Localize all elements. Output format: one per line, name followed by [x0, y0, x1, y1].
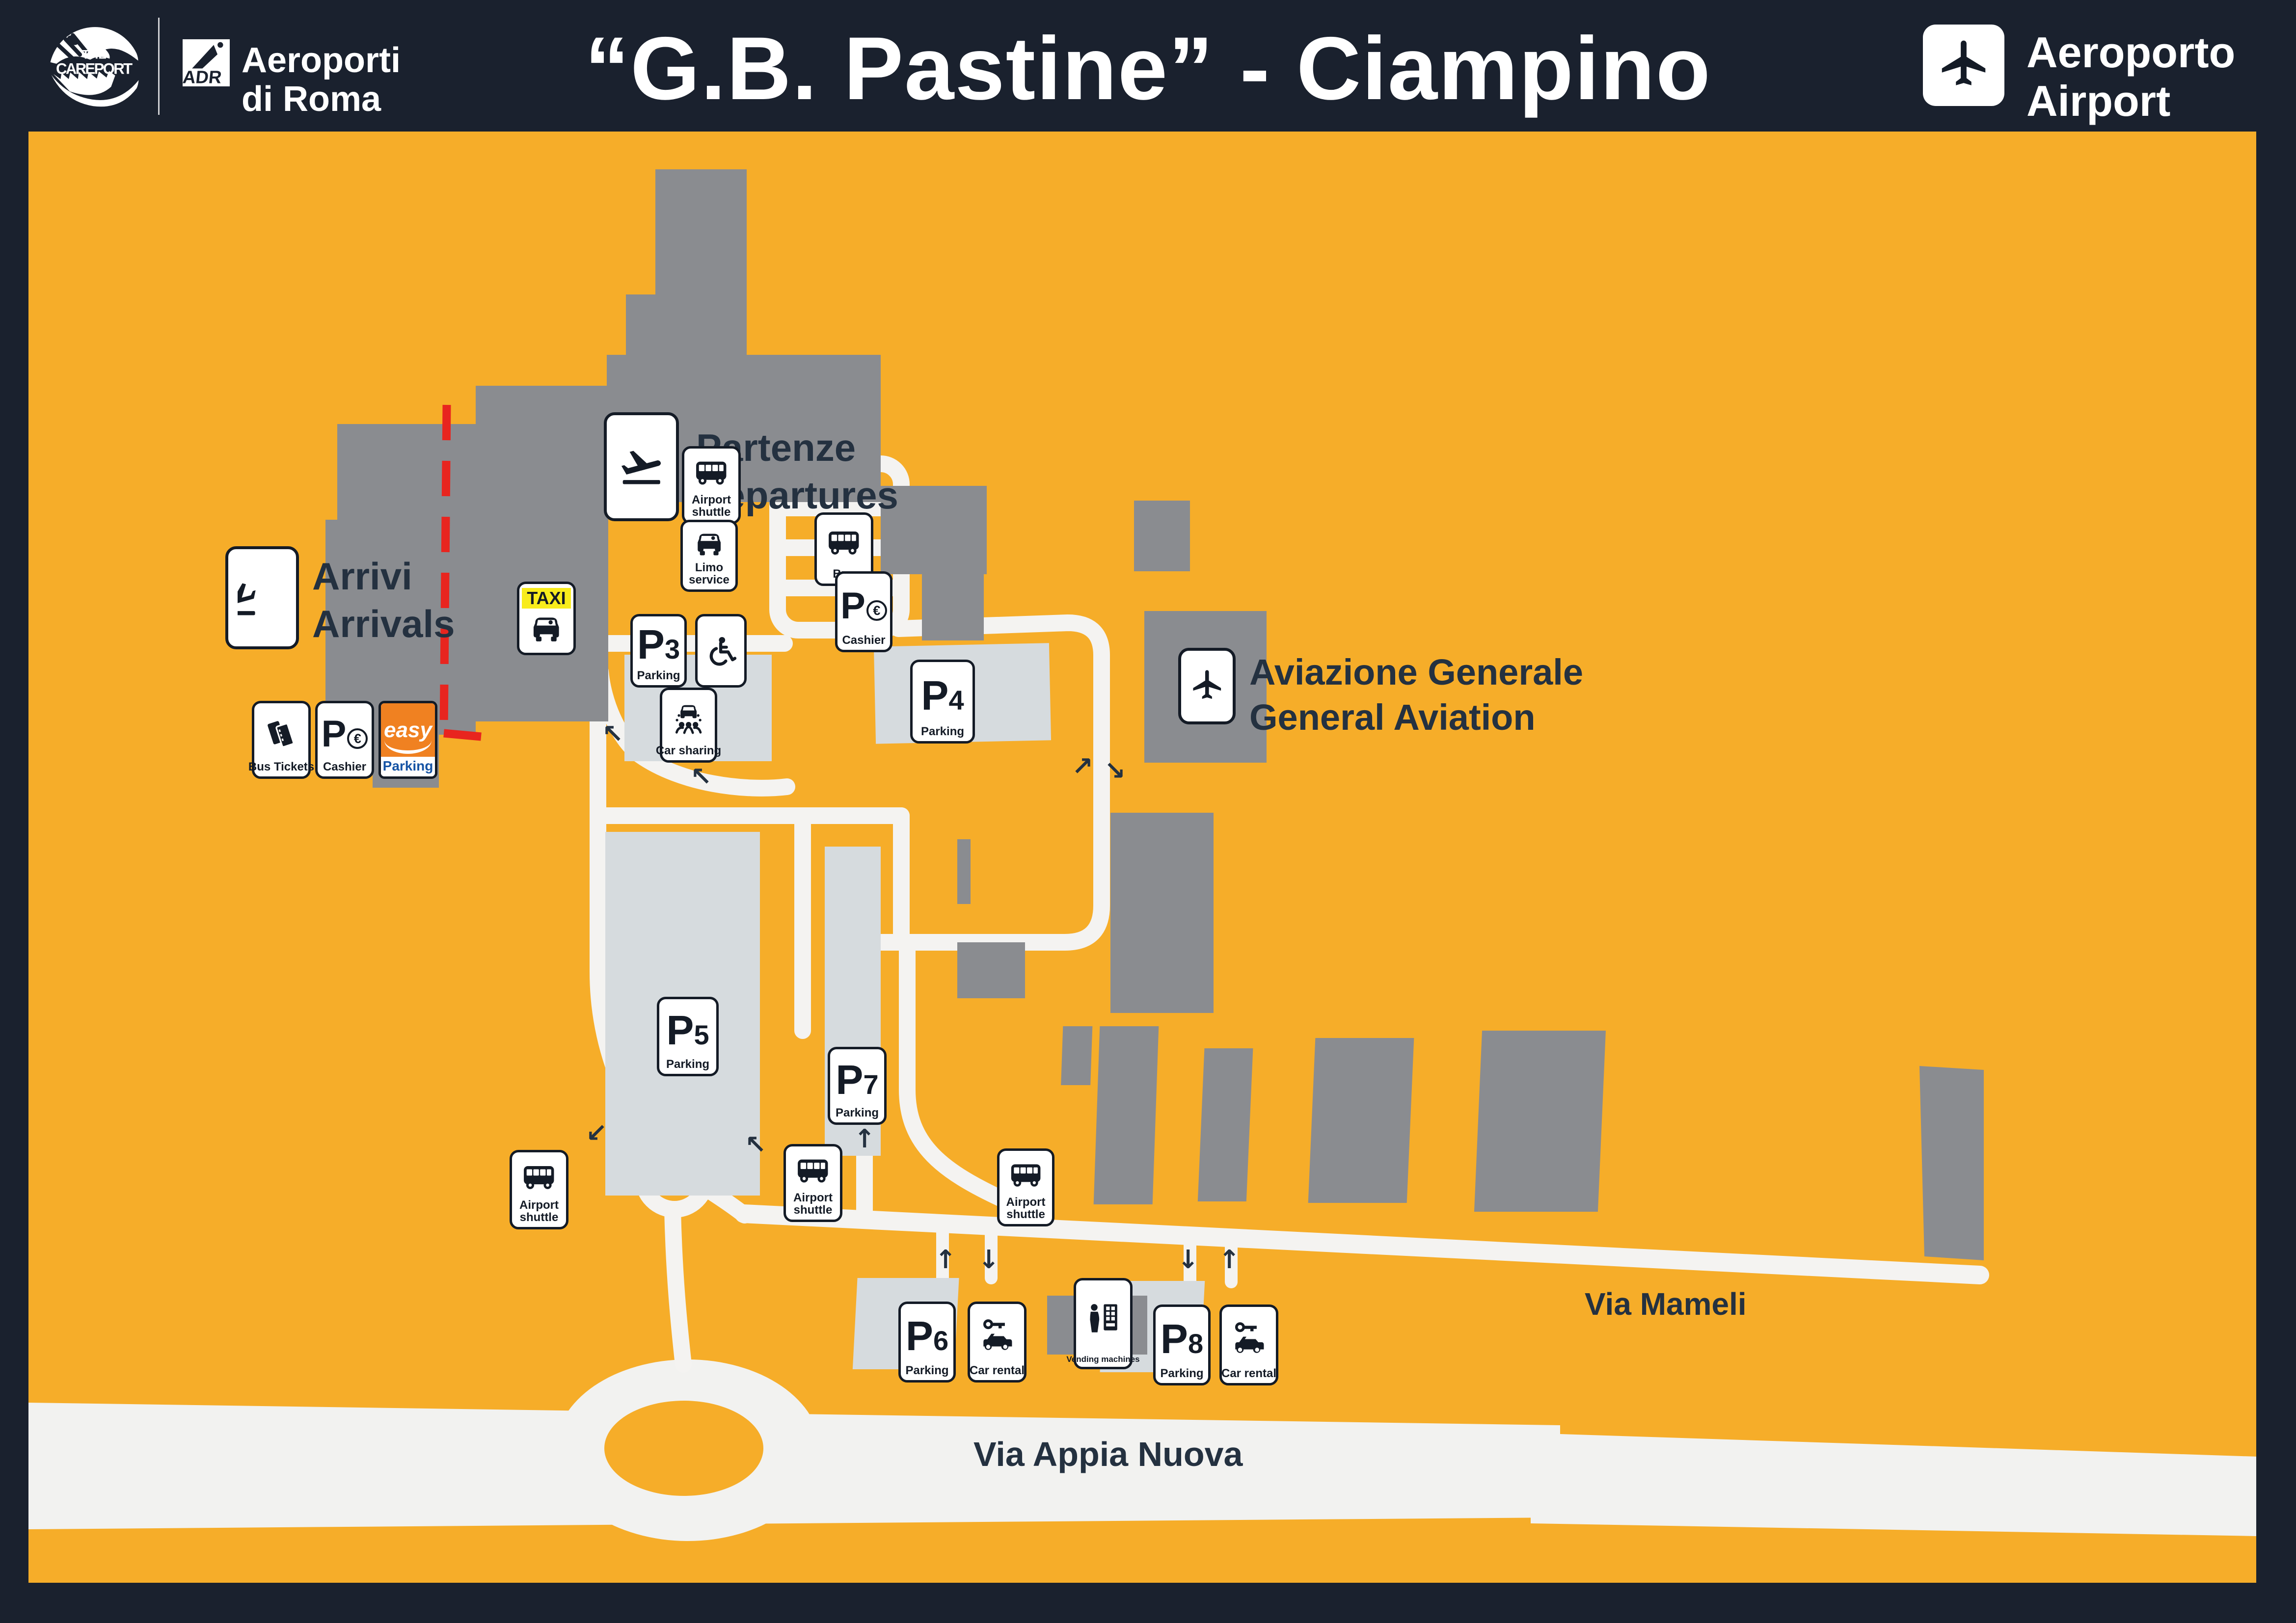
adr-logo: ADR: [183, 39, 230, 88]
svg-text:↑: ↑: [935, 1245, 956, 1275]
parking-cashier-icon: P€: [839, 578, 888, 635]
adr-logo-icon: ADR: [183, 39, 230, 86]
limo-service-badge: Limo service: [680, 520, 738, 592]
via-mameli-label: Via Mameli: [1585, 1285, 1747, 1324]
taxi-sign: TAXI: [522, 588, 570, 609]
careport-the-text: THE: [82, 48, 107, 62]
car-sharing-badge: Car sharing: [660, 688, 717, 763]
car-rental-icon: [1224, 1311, 1274, 1368]
airport-shuttle-mameli-badge: Airport shuttle: [997, 1148, 1054, 1226]
easy-parking-badge: easy Parking: [378, 701, 437, 779]
p4-parking-badge: P4 Parking: [910, 660, 975, 744]
via-appia-label: Via Appia Nuova: [973, 1433, 1243, 1476]
svg-text:↖: ↖: [602, 719, 623, 749]
svg-text:↖: ↖: [745, 1130, 766, 1160]
departures-icon: [604, 412, 679, 521]
svg-text:↓: ↓: [978, 1245, 999, 1275]
p8-parking-badge: P8 Parking: [1153, 1304, 1211, 1385]
airport-map-page: THE CAREPORT ADR Aeroporti di Roma “G.B.…: [0, 0, 2296, 1623]
header-divider: [158, 18, 160, 115]
airport-plane-icon: [1923, 25, 2004, 106]
careport-name-text: CAREPORT: [56, 60, 133, 78]
p5-mark: P5: [661, 1003, 714, 1059]
p3-parking-badge: P3 Parking: [630, 614, 687, 688]
p8-mark: P8: [1158, 1311, 1206, 1368]
svg-text:↖: ↖: [690, 762, 712, 792]
shuttle-bus-icon: [686, 452, 736, 494]
airport-name: Aeroporto Airport: [2026, 28, 2235, 125]
tickets-icon: [256, 707, 306, 761]
general-aviation-icon: [1178, 648, 1236, 724]
vending-machine-icon: [1078, 1284, 1128, 1355]
car-sharing-icon: [664, 694, 713, 745]
bus-icon: [819, 519, 869, 568]
accessible-parking-badge: [695, 614, 747, 688]
svg-text:↗: ↗: [1072, 752, 1093, 781]
svg-text:↙: ↙: [586, 1118, 607, 1148]
via-mameli-road: [744, 1214, 1980, 1282]
airport-shuttle-p5-badge: Airport shuttle: [510, 1150, 568, 1229]
svg-text:↑: ↑: [1218, 1245, 1240, 1275]
airport-map: ↖ ↖ ↗ ↘ ↙ ↖ ↑ ↑ ↓ ↓ ↑ Partenze Departure…: [28, 132, 2256, 1583]
taxi-car-icon: [521, 609, 571, 649]
easy-parking-logo: easy: [381, 703, 435, 757]
careport-logo-icon: THE CAREPORT: [43, 14, 145, 116]
map-graphics: ↖ ↖ ↗ ↘ ↙ ↖ ↑ ↑ ↓ ↓ ↑: [28, 132, 2256, 1583]
vending-machines-badge: Vending machines: [1074, 1278, 1133, 1369]
p4-mark: P4: [915, 666, 971, 726]
p6-mark: P6: [903, 1308, 951, 1365]
careport-logo: THE CAREPORT: [43, 14, 145, 118]
p6-parking-badge: P6 Parking: [898, 1302, 956, 1383]
svg-text:↘: ↘: [1104, 756, 1126, 786]
general-aviation-label: Aviazione Generale General Aviation: [1249, 650, 1583, 740]
svg-text:↓: ↓: [1177, 1245, 1199, 1275]
airport-shuttle-terminal-badge: Airport shuttle: [682, 446, 741, 524]
p5-parking-badge: P5 Parking: [657, 997, 719, 1076]
car-rental-icon: [972, 1308, 1022, 1365]
airport-shuttle-p7-badge: Airport shuttle: [783, 1144, 842, 1222]
limo-car-icon: [685, 526, 733, 562]
adr-abbr-text: ADR: [183, 67, 223, 86]
page-title: “G.B. Pastine” - Ciampino: [585, 17, 1711, 120]
bus-tickets-badge: Bus Tickets: [252, 701, 311, 779]
arrivals-icon: [225, 546, 299, 649]
shuttle-bus-icon: [788, 1150, 838, 1192]
p7-mark: P7: [832, 1053, 882, 1107]
wheelchair-icon: [700, 620, 742, 682]
p3-mark: P3: [635, 620, 682, 670]
cashier-p4-badge: P€ Cashier: [835, 571, 892, 652]
car-rental-p6-badge: Car rental: [968, 1302, 1026, 1383]
parking-cashier-icon: P€: [320, 707, 370, 761]
car-rental-p8-badge: Car rental: [1219, 1304, 1278, 1385]
arrivals-label: Arrivi Arrivals: [312, 553, 455, 647]
shuttle-bus-icon: [1001, 1155, 1050, 1197]
taxi-badge: TAXI: [517, 582, 576, 655]
adr-name: Aeroporti di Roma: [242, 41, 401, 119]
shuttle-bus-icon: [514, 1156, 564, 1199]
p7-parking-badge: P7 Parking: [828, 1047, 887, 1125]
cashier-terminal-badge: P€ Cashier: [315, 701, 374, 779]
svg-text:↑: ↑: [854, 1124, 875, 1154]
